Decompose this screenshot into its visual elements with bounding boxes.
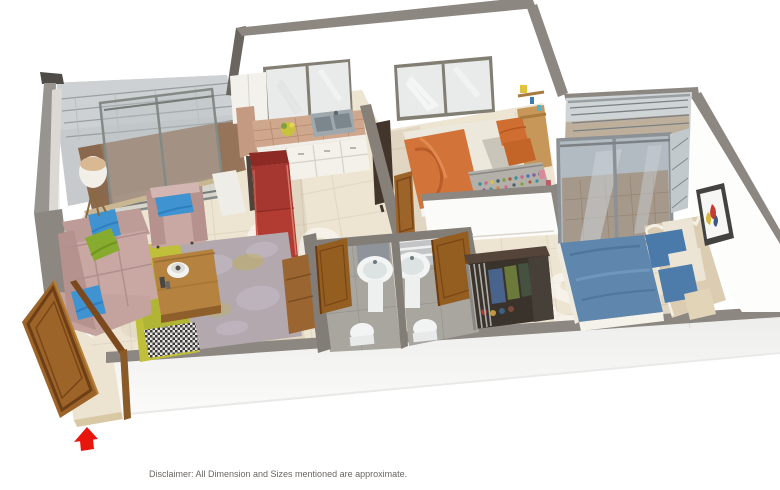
svg-text:Disclaimer: All Dimension and: Disclaimer: All Dimension and Sizes ment… xyxy=(149,469,407,479)
